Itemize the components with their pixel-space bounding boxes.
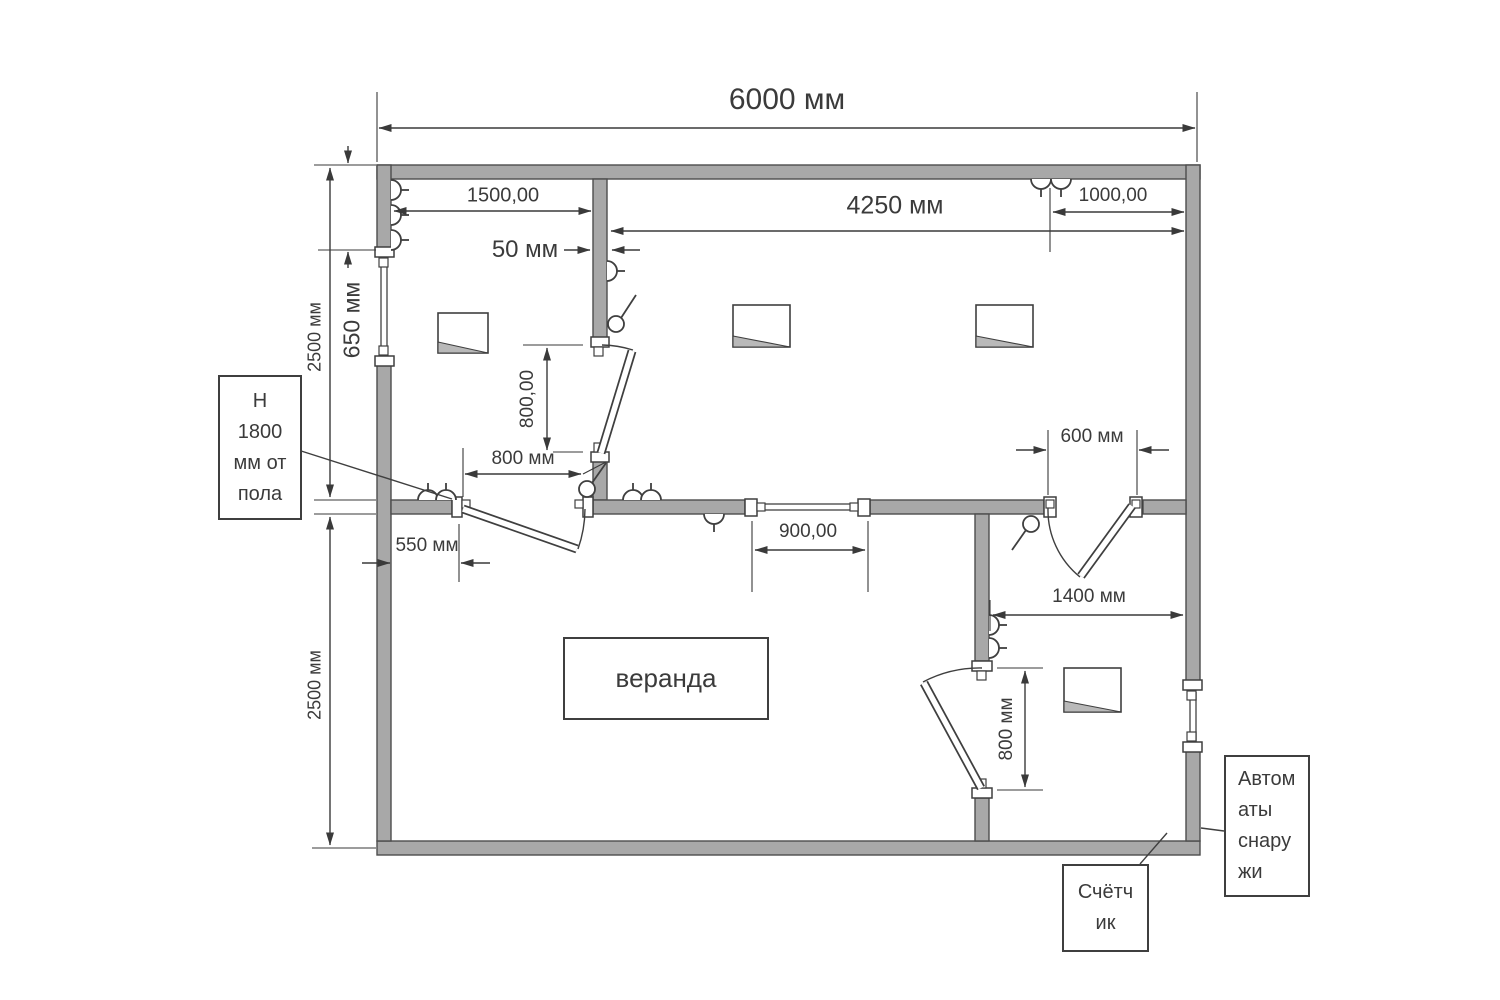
height-note-box: Н 1800 мм от пола — [218, 375, 302, 520]
height-note-line: мм от — [234, 448, 287, 479]
socket-top-wall-2 — [1051, 179, 1071, 197]
dimension-lower-section-height: 2500 мм — [305, 650, 326, 720]
door-veranda — [463, 509, 585, 549]
dimension-total-width: 6000 мм — [729, 83, 845, 117]
dimension-room-left-width: 1500,00 — [467, 185, 539, 208]
small-room-door-cap-bottom — [972, 788, 992, 798]
meter-label-line: Счётч — [1078, 877, 1133, 908]
socket-interior-wall-2 — [989, 638, 1007, 658]
door-caps-layer — [452, 337, 1142, 798]
meter-label-line: ик — [1096, 908, 1116, 939]
wall-left-upper — [377, 165, 391, 250]
middle-wall-c — [870, 500, 1044, 514]
socket-interior-wall-1 — [989, 615, 1007, 635]
fixture-symbol-room1 — [438, 313, 488, 353]
wall-right-upper — [1186, 165, 1200, 682]
socket-middle-wall-room2-a — [623, 483, 643, 500]
dimension-left-window-offset: 650 мм — [339, 282, 366, 358]
dimension-room-right-width: 4250 мм — [847, 192, 944, 221]
window-middle — [745, 499, 870, 516]
floor-plan: 6000 мм 1500,00 4250 мм 1000,00 50 мм 65… — [0, 0, 1500, 1000]
socket-left-wall-1 — [391, 180, 409, 200]
wall-right-lower — [1186, 750, 1200, 841]
switch-right-room-door — [1012, 516, 1039, 550]
dimension-switch-distance: 800 мм — [491, 448, 554, 470]
wall-top — [377, 165, 1200, 179]
breakers-label-line: снару — [1238, 826, 1291, 857]
partition-wall-upper — [593, 179, 607, 339]
socket-partition-wall — [607, 261, 625, 281]
dimension-top-right-offset: 1000,00 — [1079, 185, 1148, 207]
middle-wall-a — [391, 500, 452, 514]
veranda-label-box: веранда — [563, 637, 769, 720]
dimension-middle-window-width: 900,00 — [779, 521, 837, 543]
dimension-inner-door-width: 800,00 — [517, 370, 539, 428]
small-room-door-cap-top — [972, 661, 992, 671]
leader-breakers — [1201, 828, 1224, 831]
leader-height-note — [298, 450, 452, 499]
socket-left-wall-3 — [391, 230, 409, 250]
dimension-veranda-door-offset: 550 мм — [395, 535, 458, 557]
door-right-room — [1048, 506, 1132, 577]
dimension-right-door-width: 600 мм — [1060, 426, 1123, 448]
window-right — [1183, 680, 1202, 752]
veranda-label: веранда — [616, 663, 717, 694]
fixture-symbol-small-room — [1064, 668, 1121, 712]
breakers-label-line: Автом — [1238, 764, 1295, 795]
partition-door-cap-bottom — [591, 452, 609, 462]
socket-middle-wall-veranda — [704, 514, 724, 532]
socket-middle-wall-room2-b — [641, 483, 661, 500]
middle-wall-d — [1143, 500, 1186, 514]
dimension-lines-layer — [312, 92, 1197, 848]
dimension-upper-section-height: 2500 мм — [305, 302, 326, 372]
height-note-line: пола — [238, 479, 282, 510]
socket-left-wall-2 — [391, 205, 409, 225]
doors-layer — [463, 345, 1132, 788]
door-small-room — [923, 668, 982, 788]
wall-left-lower — [377, 362, 391, 841]
socket-top-wall-1 — [1031, 179, 1051, 197]
height-note-line: Н — [253, 386, 267, 417]
breakers-label-line: аты — [1238, 795, 1272, 826]
door-partition — [601, 345, 633, 453]
wall-bottom — [377, 841, 1200, 855]
dimension-small-room-door-width: 800 мм — [996, 697, 1018, 760]
breakers-label-box: Автом аты снару жи — [1224, 755, 1310, 897]
fixture-symbol-room2-right — [976, 305, 1033, 347]
fixture-symbol-room2-left — [733, 305, 790, 347]
breakers-label-line: жи — [1238, 857, 1263, 888]
meter-label-box: Счётч ик — [1062, 864, 1149, 952]
dimension-partition-thickness: 50 мм — [492, 236, 558, 264]
interior-wall-upper — [975, 514, 989, 661]
middle-wall-b — [593, 500, 745, 514]
height-note-line: 1800 — [238, 417, 283, 448]
switch-partition-wall — [608, 295, 636, 332]
dimension-small-room-width: 1400 мм — [1052, 586, 1126, 608]
interior-wall-lower — [975, 798, 989, 841]
window-left — [375, 247, 394, 366]
